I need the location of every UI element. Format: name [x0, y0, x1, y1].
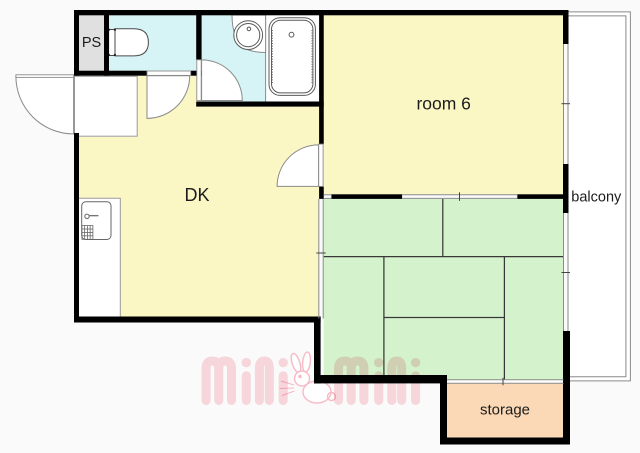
svg-text:DK: DK	[184, 185, 209, 205]
svg-text:PS: PS	[82, 35, 101, 51]
svg-text:room 6: room 6	[416, 94, 470, 114]
svg-text:balcony: balcony	[571, 190, 622, 206]
svg-text:storage: storage	[480, 402, 530, 419]
